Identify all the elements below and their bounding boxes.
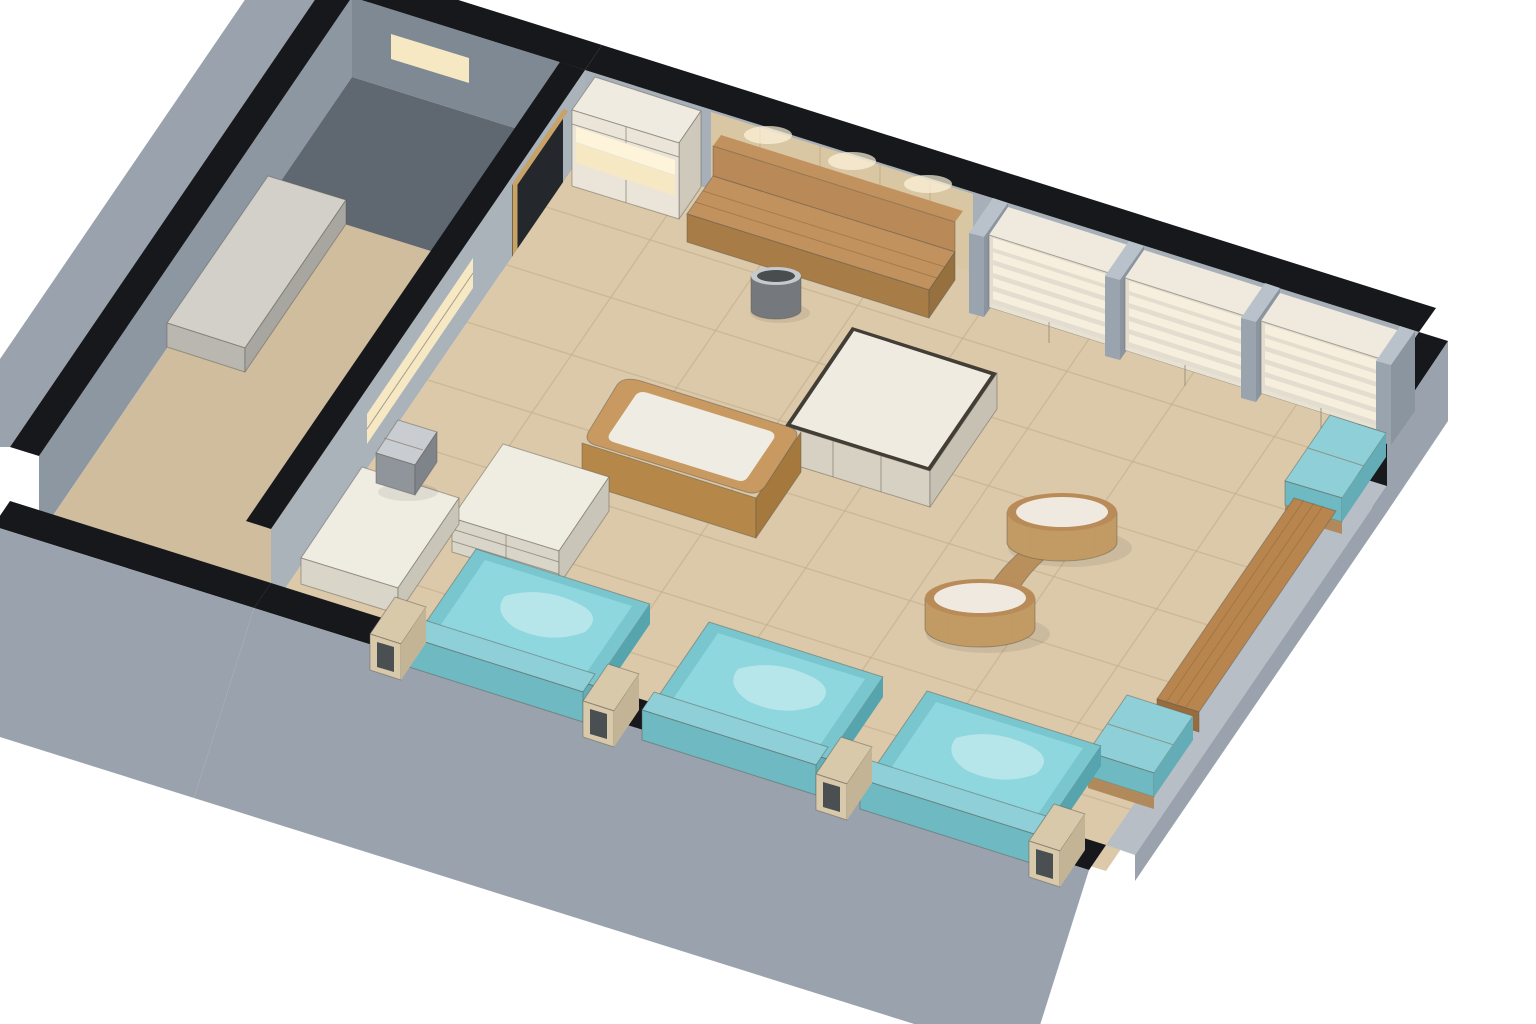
ceiling-spot-glow xyxy=(744,126,792,144)
ceiling-spot-glow xyxy=(828,152,876,170)
wall-pillar xyxy=(1105,276,1120,360)
table-marble-top xyxy=(1016,497,1108,527)
wall-pillar xyxy=(1241,318,1256,402)
ceiling-spot-glow xyxy=(904,175,952,193)
bin-opening xyxy=(757,270,795,282)
table-marble-top xyxy=(934,583,1026,613)
frame-hole xyxy=(590,709,607,739)
round-table-2 xyxy=(925,579,1035,647)
wall-pillar xyxy=(969,233,984,317)
frame-hole xyxy=(1036,849,1053,879)
frame-hole xyxy=(823,782,840,812)
frame-hole xyxy=(377,642,394,672)
round-table-1 xyxy=(1007,493,1117,561)
scene-spa-cutaway xyxy=(0,0,1536,1024)
